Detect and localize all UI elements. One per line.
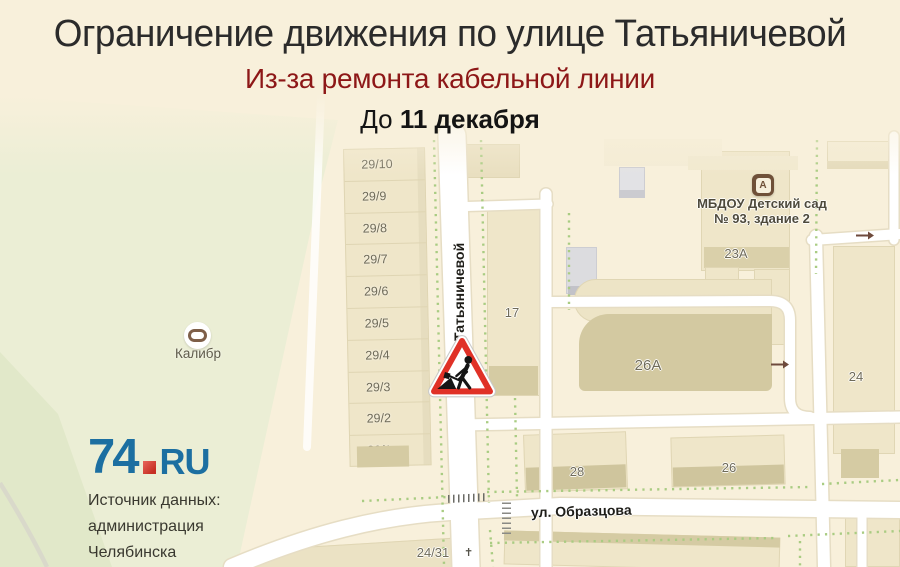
- roadworks-sign-icon: [427, 334, 497, 404]
- source-line: Челябинска: [88, 540, 221, 566]
- street-label-obraztsova: ул. Образцова: [531, 502, 632, 521]
- page-subtitle: Из-за ремонта кабельной линии: [0, 63, 900, 95]
- one-way-arrow-icon: [855, 231, 875, 240]
- date-prefix: До: [360, 104, 400, 134]
- header: Ограничение движения по улице Татьяничев…: [0, 0, 900, 135]
- kalibr-icon: [188, 329, 207, 342]
- date-value: 11 декабря: [400, 104, 540, 134]
- kindergarten-label: МБДОУ Детский сад № 93, здание 2: [677, 196, 847, 226]
- one-way-arrow-icon: [770, 360, 790, 369]
- 74ru-logo: 74 RU: [88, 438, 221, 476]
- stairs-marking: [502, 502, 511, 534]
- factory-poi-icon: [184, 322, 211, 349]
- logo-red-dot-icon: [143, 461, 156, 474]
- kindergarten-label-line2: № 93, здание 2: [677, 211, 847, 226]
- logo-ru: RU: [160, 447, 210, 476]
- source-line: администрация: [88, 514, 221, 540]
- logo-74: 74: [88, 438, 137, 476]
- kalibr-label: Калибр: [175, 346, 221, 361]
- source-line: Источник данных:: [88, 488, 221, 514]
- date-line: До 11 декабря: [0, 104, 900, 135]
- page-title: Ограничение движения по улице Татьяничев…: [14, 13, 887, 56]
- data-source: Источник данных: администрация Челябинск…: [88, 488, 221, 566]
- infographic-page: 29/1029/929/829/729/629/529/429/329/229/…: [0, 0, 900, 567]
- kindergarten-icon: А: [752, 174, 774, 196]
- kindergarten-label-line1: МБДОУ Детский сад: [677, 196, 847, 211]
- kindergarten-icon-letter: А: [756, 178, 771, 193]
- attribution: 74 RU Источник данных: администрация Чел…: [88, 438, 221, 566]
- cross-marker: ✝: [464, 546, 473, 559]
